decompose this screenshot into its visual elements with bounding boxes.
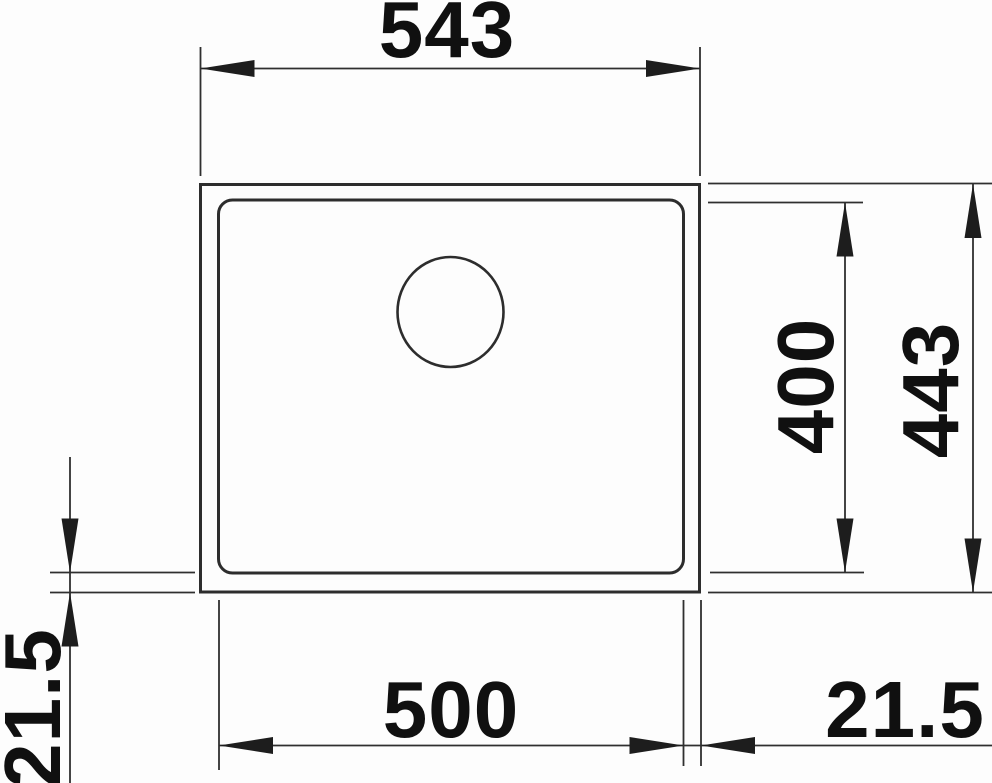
sink-outer-outline <box>201 185 700 593</box>
arrowhead-rim-right <box>701 737 755 754</box>
arrowhead-bowl-width-right <box>630 737 684 754</box>
dim-label-rim-left: 21.5 <box>0 628 77 783</box>
dim-label-outer-width: 543 <box>379 0 515 74</box>
arrowhead-bowl-width-left <box>219 737 273 754</box>
dim-label-rim-right: 21.5 <box>825 665 985 754</box>
dim-label-bowl-width: 500 <box>383 665 519 754</box>
arrowhead-bowl-depth-top <box>837 203 854 257</box>
arrowhead-bowl-depth-bottom <box>837 519 854 573</box>
arrowhead-outer-depth-top <box>965 184 982 238</box>
arrowhead-outer-depth-bottom <box>965 539 982 593</box>
arrowhead-outer-width-right <box>646 60 700 77</box>
dim-label-bowl-depth: 400 <box>761 318 850 454</box>
drawing-canvas: 543 500 21.5 400 443 21.5 <box>0 0 992 783</box>
sink-dimension-drawing: 543 500 21.5 400 443 21.5 <box>0 0 992 783</box>
dim-label-outer-depth: 443 <box>886 322 975 458</box>
arrowhead-rim-left-upper <box>62 519 79 573</box>
drain-hole <box>398 257 504 367</box>
arrowhead-outer-width-left <box>201 60 255 77</box>
